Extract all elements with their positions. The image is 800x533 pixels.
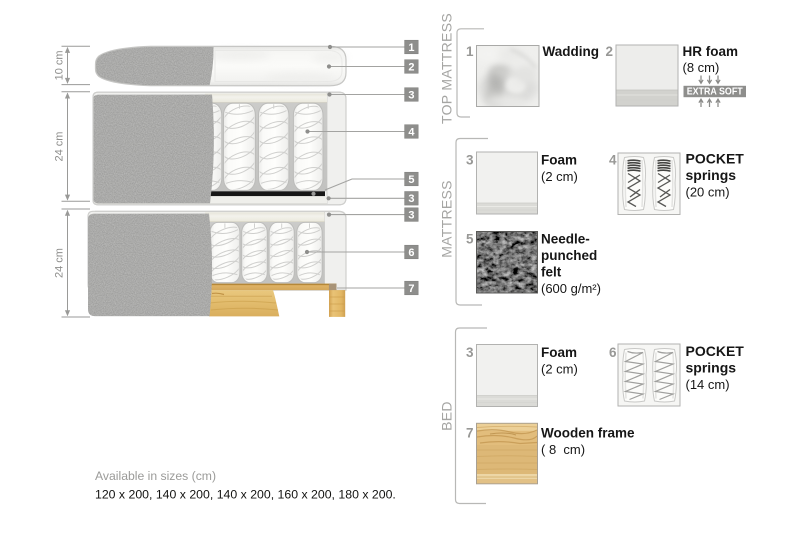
svg-text:4: 4 xyxy=(609,153,617,168)
svg-text:Foam: Foam xyxy=(541,345,577,360)
svg-text:Wooden frame: Wooden frame xyxy=(541,426,635,441)
svg-text:(8 cm): (8 cm) xyxy=(683,60,720,75)
svg-text:(600 g/m²): (600 g/m²) xyxy=(541,281,601,296)
svg-text:120 x 200, 140 x 200, 140 x 20: 120 x 200, 140 x 200, 140 x 200, 160 x 2… xyxy=(95,488,396,502)
svg-text:3: 3 xyxy=(408,89,414,101)
svg-text:Needle-: Needle- xyxy=(541,232,590,247)
svg-text:6: 6 xyxy=(609,345,617,360)
svg-text:MATTRESS: MATTRESS xyxy=(439,180,455,258)
svg-text:(20 cm): (20 cm) xyxy=(686,185,730,200)
svg-text:(14 cm): (14 cm) xyxy=(686,377,730,392)
svg-text:springs: springs xyxy=(686,360,737,376)
svg-text:2: 2 xyxy=(408,61,414,73)
svg-text:3: 3 xyxy=(408,209,414,221)
svg-text:7: 7 xyxy=(466,426,474,441)
svg-text:Foam: Foam xyxy=(541,153,577,168)
svg-text:Wadding: Wadding xyxy=(543,44,600,59)
svg-text:EXTRA SOFT: EXTRA SOFT xyxy=(687,87,743,98)
svg-text:5: 5 xyxy=(466,232,474,247)
svg-text:(2 cm): (2 cm) xyxy=(541,169,578,184)
svg-text:1: 1 xyxy=(408,42,414,54)
svg-text:4: 4 xyxy=(408,126,415,138)
svg-text:2: 2 xyxy=(605,44,613,59)
svg-text:3: 3 xyxy=(408,193,414,205)
svg-text:10 cm: 10 cm xyxy=(53,50,65,80)
svg-text:3: 3 xyxy=(466,153,474,168)
svg-text:felt: felt xyxy=(541,265,562,280)
svg-text:punched: punched xyxy=(541,248,597,263)
svg-text:Available in sizes (cm): Available in sizes (cm) xyxy=(95,469,216,483)
svg-text:HR foam: HR foam xyxy=(683,44,739,59)
svg-text:(2 cm): (2 cm) xyxy=(541,362,578,377)
svg-text:BED: BED xyxy=(439,401,455,431)
svg-text:( 8 cm): ( 8 cm) xyxy=(541,442,585,457)
svg-text:springs: springs xyxy=(686,167,737,183)
svg-text:POCKET: POCKET xyxy=(686,343,745,359)
svg-text:24 cm: 24 cm xyxy=(53,132,65,162)
svg-text:POCKET: POCKET xyxy=(686,151,745,167)
svg-text:7: 7 xyxy=(408,283,414,295)
svg-text:TOP MATTRESS: TOP MATTRESS xyxy=(439,13,455,124)
svg-text:24 cm: 24 cm xyxy=(53,248,65,278)
svg-text:1: 1 xyxy=(466,44,474,59)
svg-text:6: 6 xyxy=(408,247,414,259)
svg-text:3: 3 xyxy=(466,345,474,360)
svg-text:5: 5 xyxy=(408,174,414,186)
